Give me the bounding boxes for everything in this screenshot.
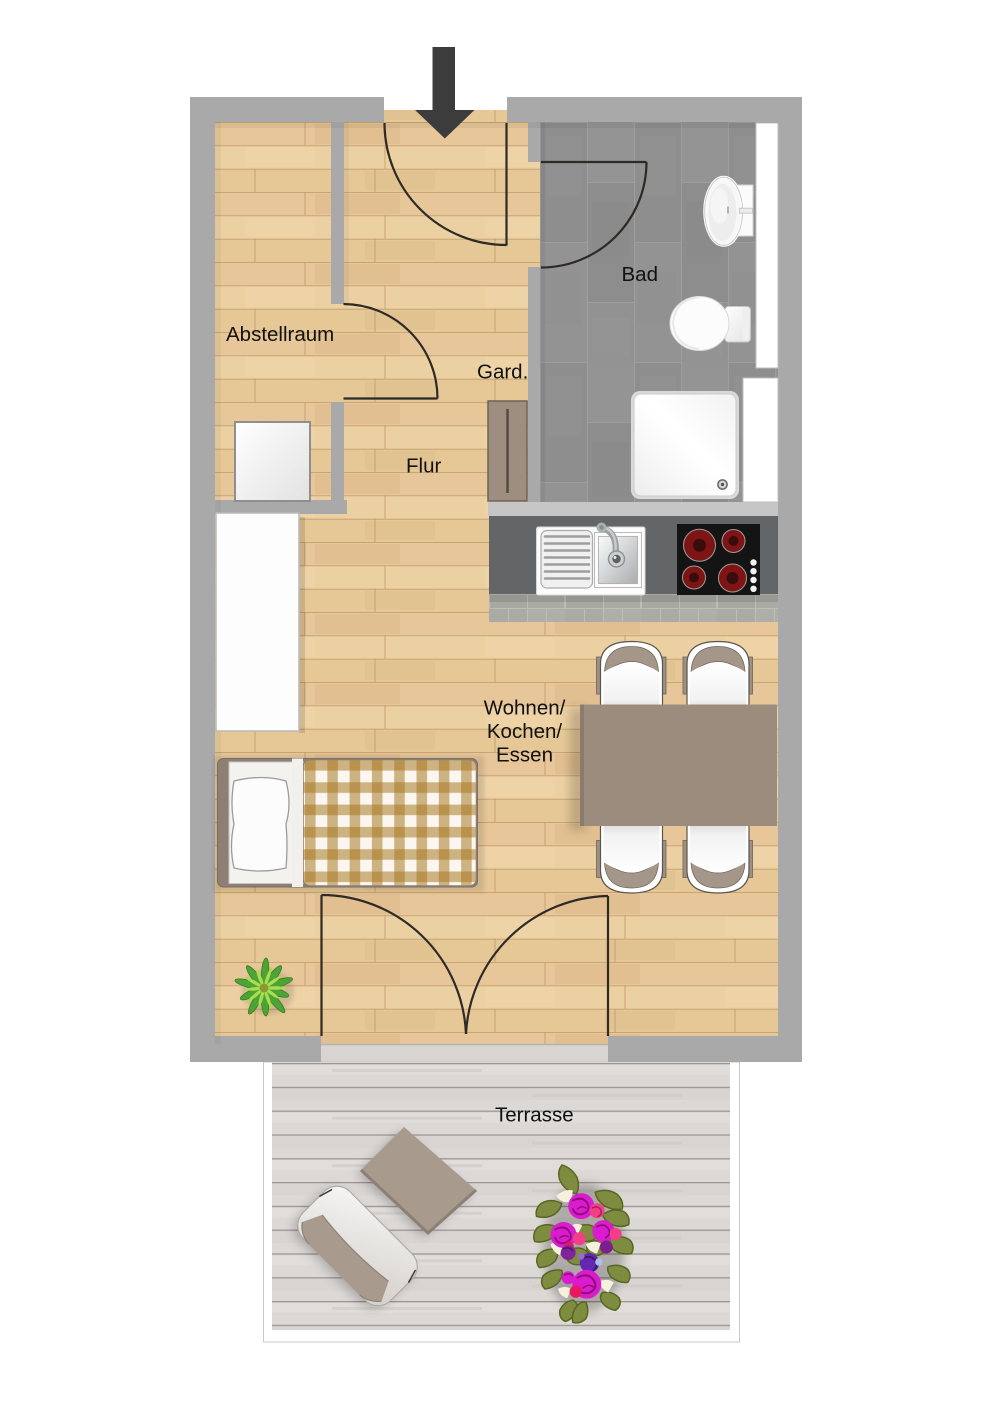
svg-text:Gard.: Gard. (477, 361, 528, 384)
svg-text:Bad: Bad (622, 263, 658, 286)
svg-text:Essen: Essen (496, 744, 553, 767)
svg-text:Flur: Flur (406, 455, 441, 478)
svg-text:Terrasse: Terrasse (495, 1104, 574, 1127)
svg-text:Abstellraum: Abstellraum (226, 323, 334, 346)
svg-text:Wohnen/: Wohnen/ (484, 697, 566, 720)
svg-text:Kochen/: Kochen/ (487, 720, 563, 743)
